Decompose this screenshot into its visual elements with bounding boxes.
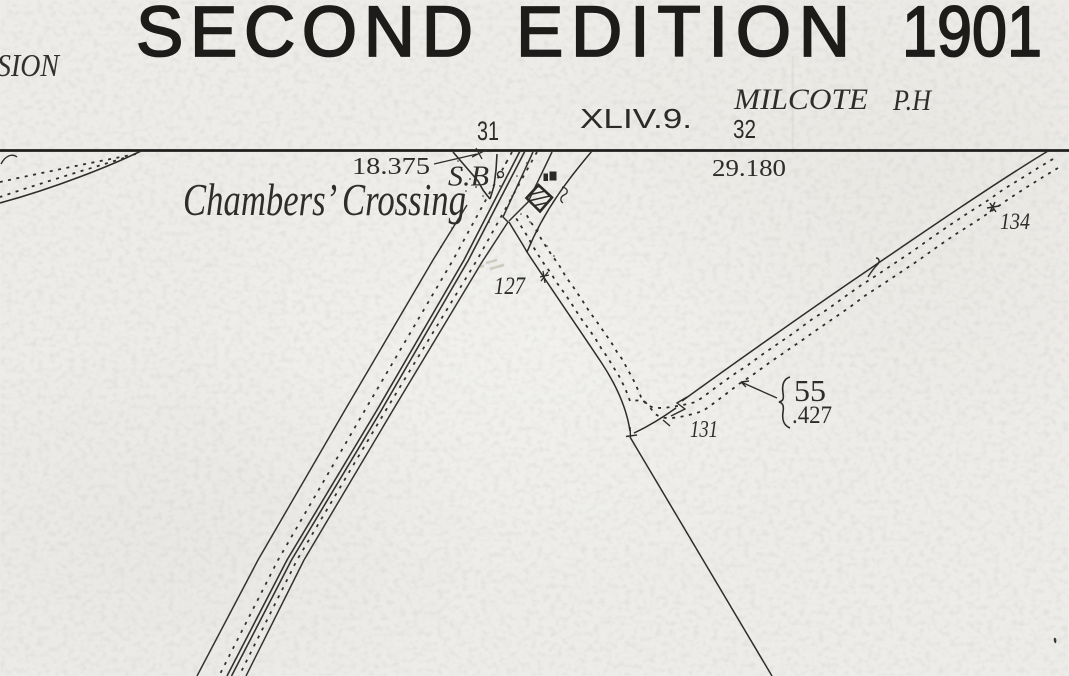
svg-text:134: 134 xyxy=(1000,209,1030,234)
svg-text:29.180: 29.180 xyxy=(712,155,786,182)
svg-text:P.H: P.H xyxy=(892,84,933,117)
svg-text:Chambers’ Crossing: Chambers’ Crossing xyxy=(183,174,466,225)
svg-text:SION: SION xyxy=(0,47,60,83)
svg-text:MILCOTE: MILCOTE xyxy=(733,83,868,116)
svg-text:31: 31 xyxy=(477,116,499,146)
svg-text:.427: .427 xyxy=(792,402,832,429)
svg-text:32: 32 xyxy=(733,114,756,144)
svg-text:127: 127 xyxy=(494,273,526,300)
svg-text:1901: 1901 xyxy=(902,0,1042,72)
svg-text:XLIV.9.: XLIV.9. xyxy=(580,103,692,134)
svg-text:131: 131 xyxy=(690,417,718,443)
